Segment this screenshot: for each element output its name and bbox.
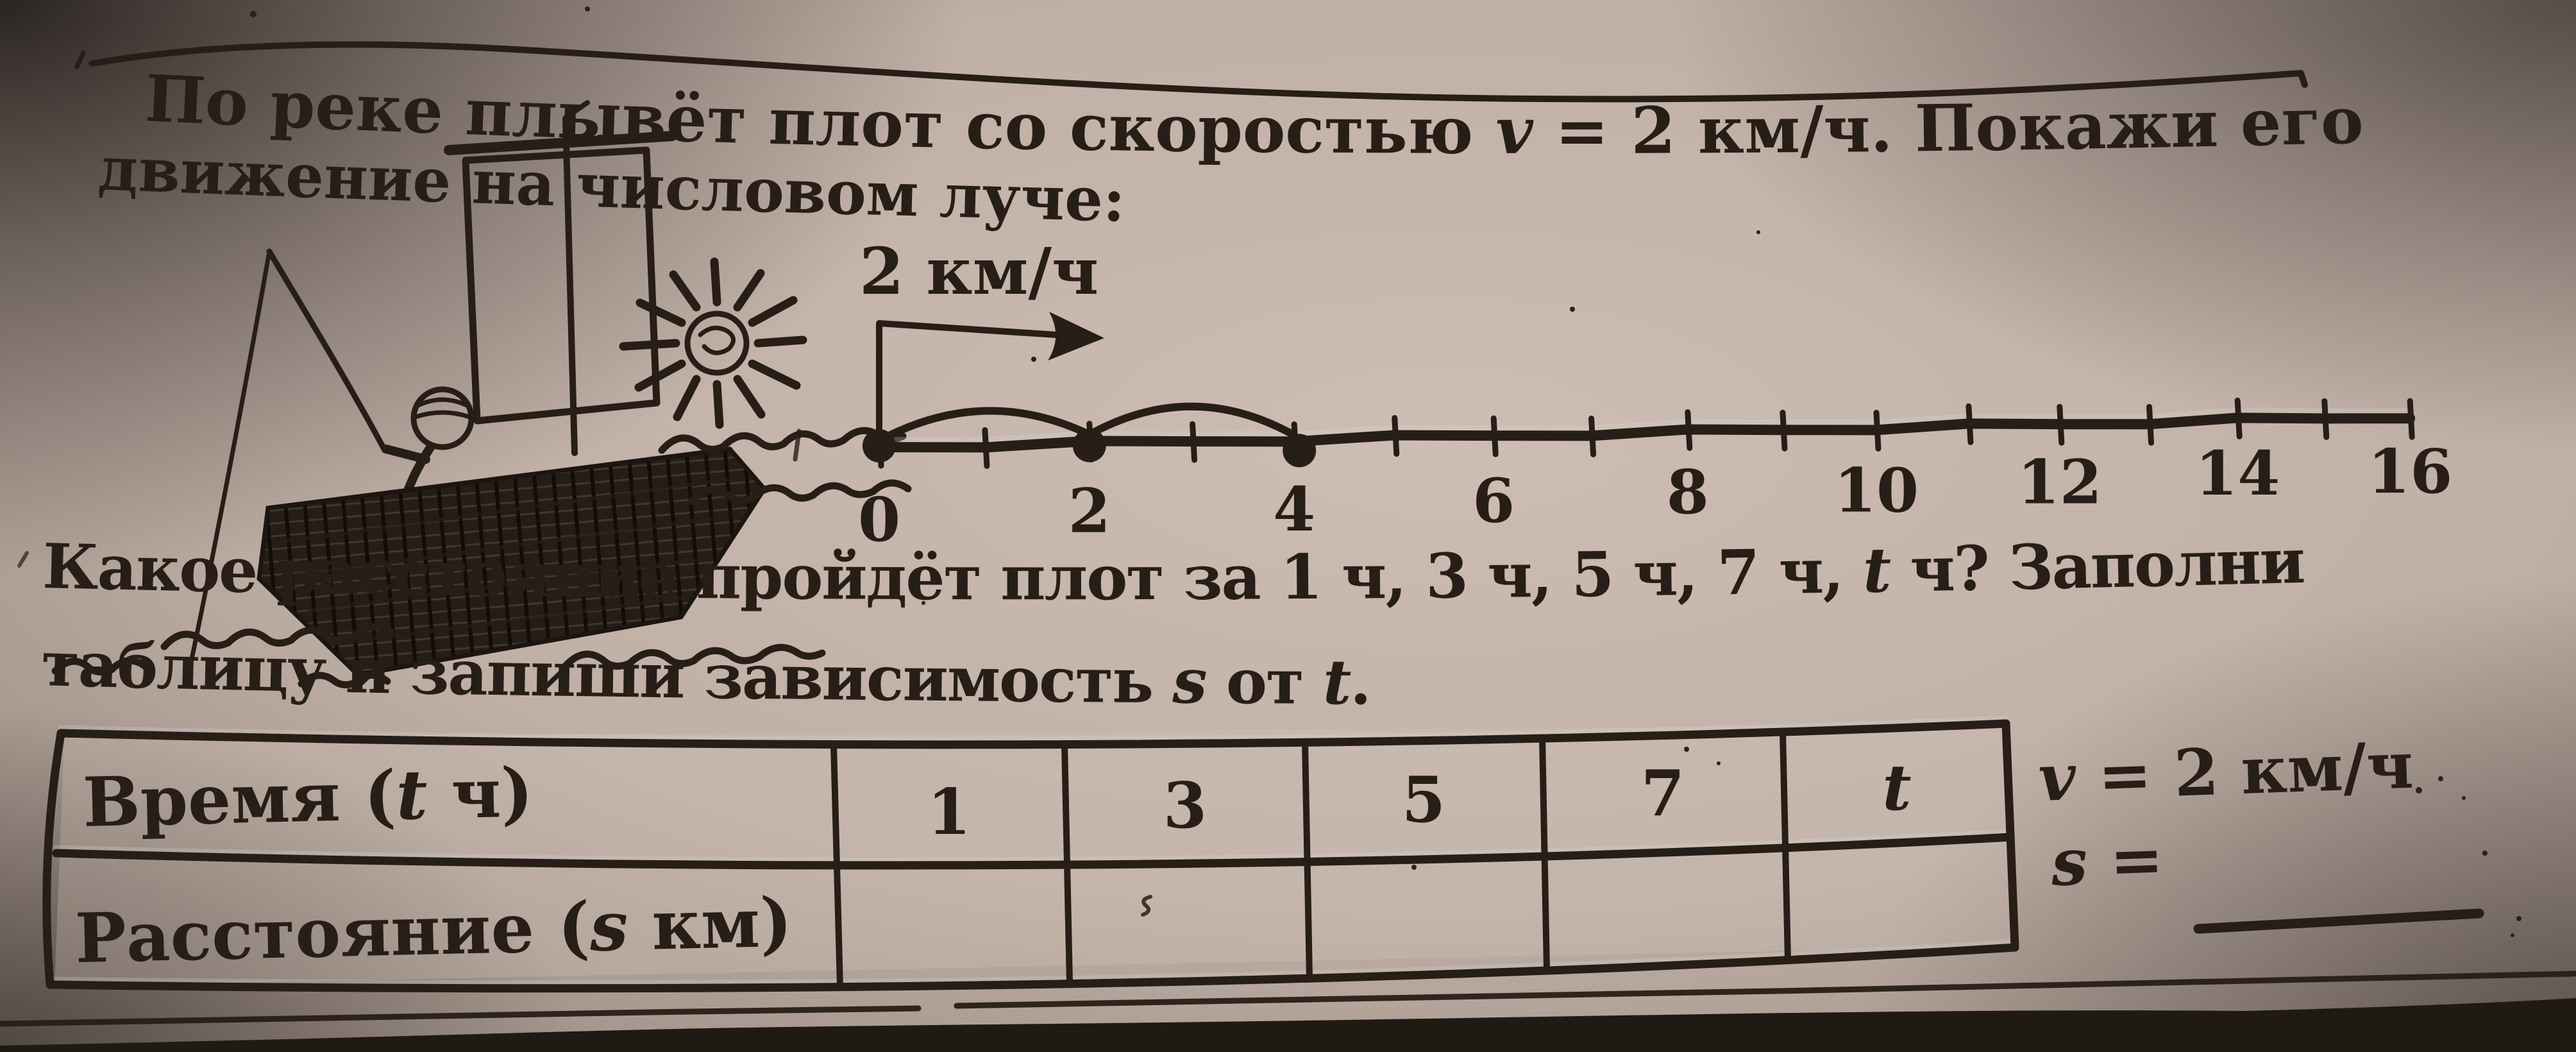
time-variable-2: t — [1323, 646, 1352, 718]
worksheet-photo: По реке плывёт плот со скоростью v = 2 к… — [0, 0, 2576, 1052]
table-row2-header: Расстояние (s км) — [74, 882, 793, 978]
tick-label-16: 16 — [2368, 436, 2452, 507]
table-time-cell: t — [1882, 751, 1911, 825]
question-line2-end: . — [1350, 646, 1370, 718]
speed-variable: v — [1495, 93, 1533, 169]
point-dot-2 — [1073, 429, 1106, 462]
time-variable: t — [1862, 534, 1892, 607]
table-time-cell: 5 — [1402, 763, 1445, 837]
tick-label-2: 2 — [1068, 476, 1111, 547]
distance-formula: s = — [2050, 821, 2165, 901]
table-column-line — [1305, 742, 1309, 977]
table-column-line — [1542, 738, 1547, 969]
question-line1-post: ч? Заполни — [1889, 525, 2305, 606]
point-dot-4 — [1283, 434, 1316, 467]
tick-label-14: 14 — [2195, 438, 2280, 509]
table-time-cell: 3 — [1163, 769, 1207, 843]
photo-of-textbook-page: По реке плывёт плот со скоростью v = 2 к… — [0, 0, 2576, 1052]
problem-line1-post: = 2 км/ч. Покажи его — [1533, 82, 2364, 168]
tick-label-6: 6 — [1472, 466, 1515, 537]
shadow-top-right — [1667, 0, 2576, 449]
speed-formula: v = 2 км/ч — [2037, 727, 2414, 816]
table-time-cell: 1 — [927, 776, 971, 849]
table-time-cell: 7 — [1641, 757, 1685, 831]
table-row1-header: Время (t ч) — [82, 752, 534, 842]
distance-variable: s — [1172, 645, 1207, 717]
tick-label-12: 12 — [2017, 446, 2102, 518]
tick-label-4: 4 — [1273, 474, 1315, 545]
tick-label-10: 10 — [1834, 455, 1919, 526]
point-dot-0 — [863, 429, 896, 462]
speed-label: 2 км/ч — [859, 233, 1099, 309]
question-line2-mid: от — [1206, 645, 1323, 718]
question-line1-pre: Какое расстояние пройдёт плот за 1 ч, 3 … — [42, 530, 1863, 614]
values-table: Время (t ч) Расстояние (s км) 1 3 5 7 t — [47, 718, 2015, 988]
tick-label-8: 8 — [1667, 457, 1709, 528]
